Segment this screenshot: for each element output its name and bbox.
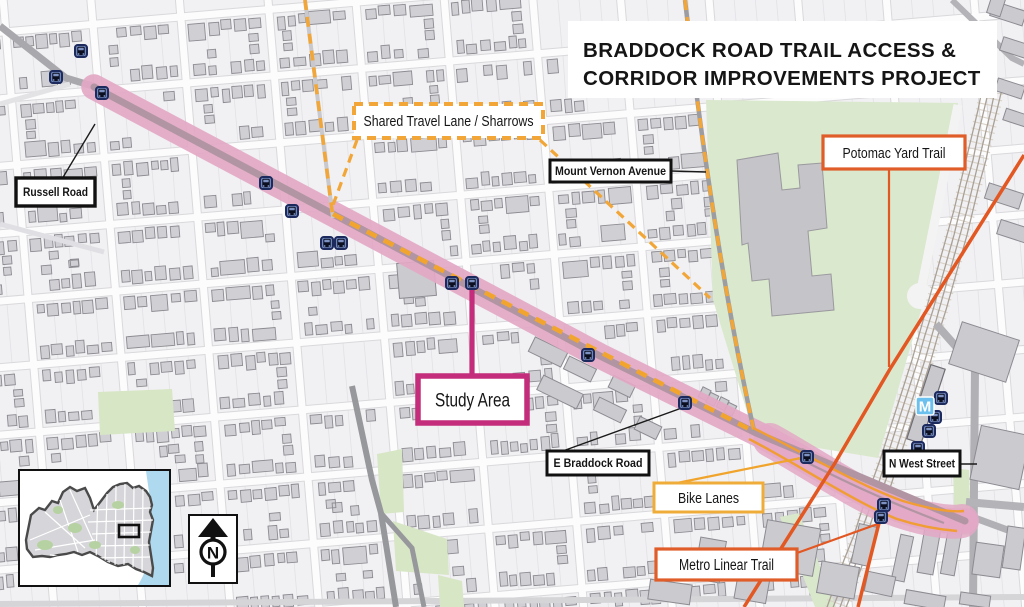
- svg-text:Potomac Yard Trail: Potomac Yard Trail: [843, 145, 946, 162]
- svg-text:Shared Travel Lane / Sharrows: Shared Travel Lane / Sharrows: [364, 114, 534, 130]
- svg-text:Russell Road: Russell Road: [23, 187, 88, 199]
- svg-text:Metro Linear Trail: Metro Linear Trail: [679, 557, 774, 574]
- svg-text:N: N: [207, 544, 219, 563]
- svg-text:M: M: [919, 399, 932, 416]
- svg-text:BRADDOCK ROAD TRAIL ACCESS &: BRADDOCK ROAD TRAIL ACCESS &: [583, 39, 956, 62]
- svg-text:Study Area: Study Area: [435, 389, 510, 411]
- svg-text:CORRIDOR IMPROVEMENTS PROJECT: CORRIDOR IMPROVEMENTS PROJECT: [583, 67, 981, 90]
- svg-text:Mount Vernon Avenue: Mount Vernon Avenue: [555, 166, 666, 178]
- svg-text:N West Street: N West Street: [889, 459, 955, 471]
- svg-text:E Braddock Road: E Braddock Road: [554, 458, 643, 470]
- svg-text:Bike Lanes: Bike Lanes: [678, 490, 739, 507]
